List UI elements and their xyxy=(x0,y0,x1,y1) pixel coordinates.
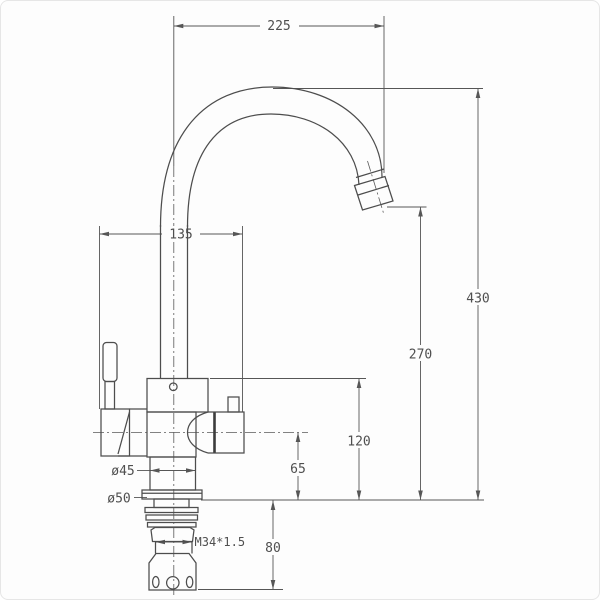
arch-inner xyxy=(188,114,360,227)
arch-outer xyxy=(161,87,383,227)
dim-label-body-width: 135 xyxy=(169,228,192,243)
base-flange xyxy=(142,490,202,499)
left-handle-stem xyxy=(105,382,115,410)
body-column xyxy=(147,412,196,457)
drawing-sheet: 225 135 430 270 120 65 80 ø45 ø50 xyxy=(0,0,600,600)
body-top-block xyxy=(147,379,208,413)
dim-overall-height: 430 xyxy=(460,89,496,501)
mounting-bracket xyxy=(149,554,196,591)
set-screw xyxy=(170,383,178,391)
dim-neck-diameter: ø45 xyxy=(111,464,195,479)
dim-label-neck-diameter: ø45 xyxy=(111,464,134,479)
faucet-outline xyxy=(101,87,393,590)
left-handle-bar xyxy=(103,343,117,382)
left-valve-lever-edge xyxy=(118,412,130,454)
dim-label-spout-outlet-height: 270 xyxy=(409,348,432,363)
dim-body-width: 135 xyxy=(100,226,243,243)
shank-collar xyxy=(154,499,189,508)
bracket-center-hole xyxy=(167,577,179,589)
mounting-nut xyxy=(151,528,194,542)
bracket-slot-right xyxy=(186,577,192,588)
main-body xyxy=(147,379,208,458)
left-handle-valve xyxy=(101,343,147,457)
threaded-shank xyxy=(145,499,198,554)
dim-label-thread-spec: M34*1.5 xyxy=(195,535,246,549)
bracket-plate xyxy=(149,554,196,591)
dim-under-counter-depth: 80 xyxy=(260,501,286,590)
aerator-ring-line xyxy=(358,186,389,196)
dim-spout-outlet-height: 270 xyxy=(402,207,439,500)
dim-label-side-outlet-height: 65 xyxy=(290,462,306,477)
thread-ring-2 xyxy=(146,515,198,520)
neck-cylinder xyxy=(150,457,196,490)
dim-label-under-counter-depth: 80 xyxy=(265,541,281,556)
dim-label-body-top-height: 120 xyxy=(347,435,370,450)
spout-tip xyxy=(355,169,394,210)
thread-ring-1 xyxy=(145,508,198,513)
neck-and-flange xyxy=(142,457,202,499)
thread-ring-3 xyxy=(148,523,197,528)
dim-base-diameter: ø50 xyxy=(107,492,147,507)
faucet-drawing: 225 135 430 270 120 65 80 ø45 ø50 xyxy=(1,1,600,600)
dim-side-outlet-height: 65 xyxy=(285,433,311,501)
bracket-slot-left xyxy=(153,577,159,588)
dim-label-overall-height: 430 xyxy=(466,292,489,307)
centerlines xyxy=(93,161,384,597)
dim-label-spout-reach: 225 xyxy=(267,19,290,34)
right-valve-lever xyxy=(228,397,239,412)
dim-body-top-height: 120 xyxy=(341,379,378,501)
extension-lines xyxy=(100,16,485,590)
dim-spout-reach: 225 xyxy=(174,18,384,34)
dim-label-base-diameter: ø50 xyxy=(107,492,130,507)
